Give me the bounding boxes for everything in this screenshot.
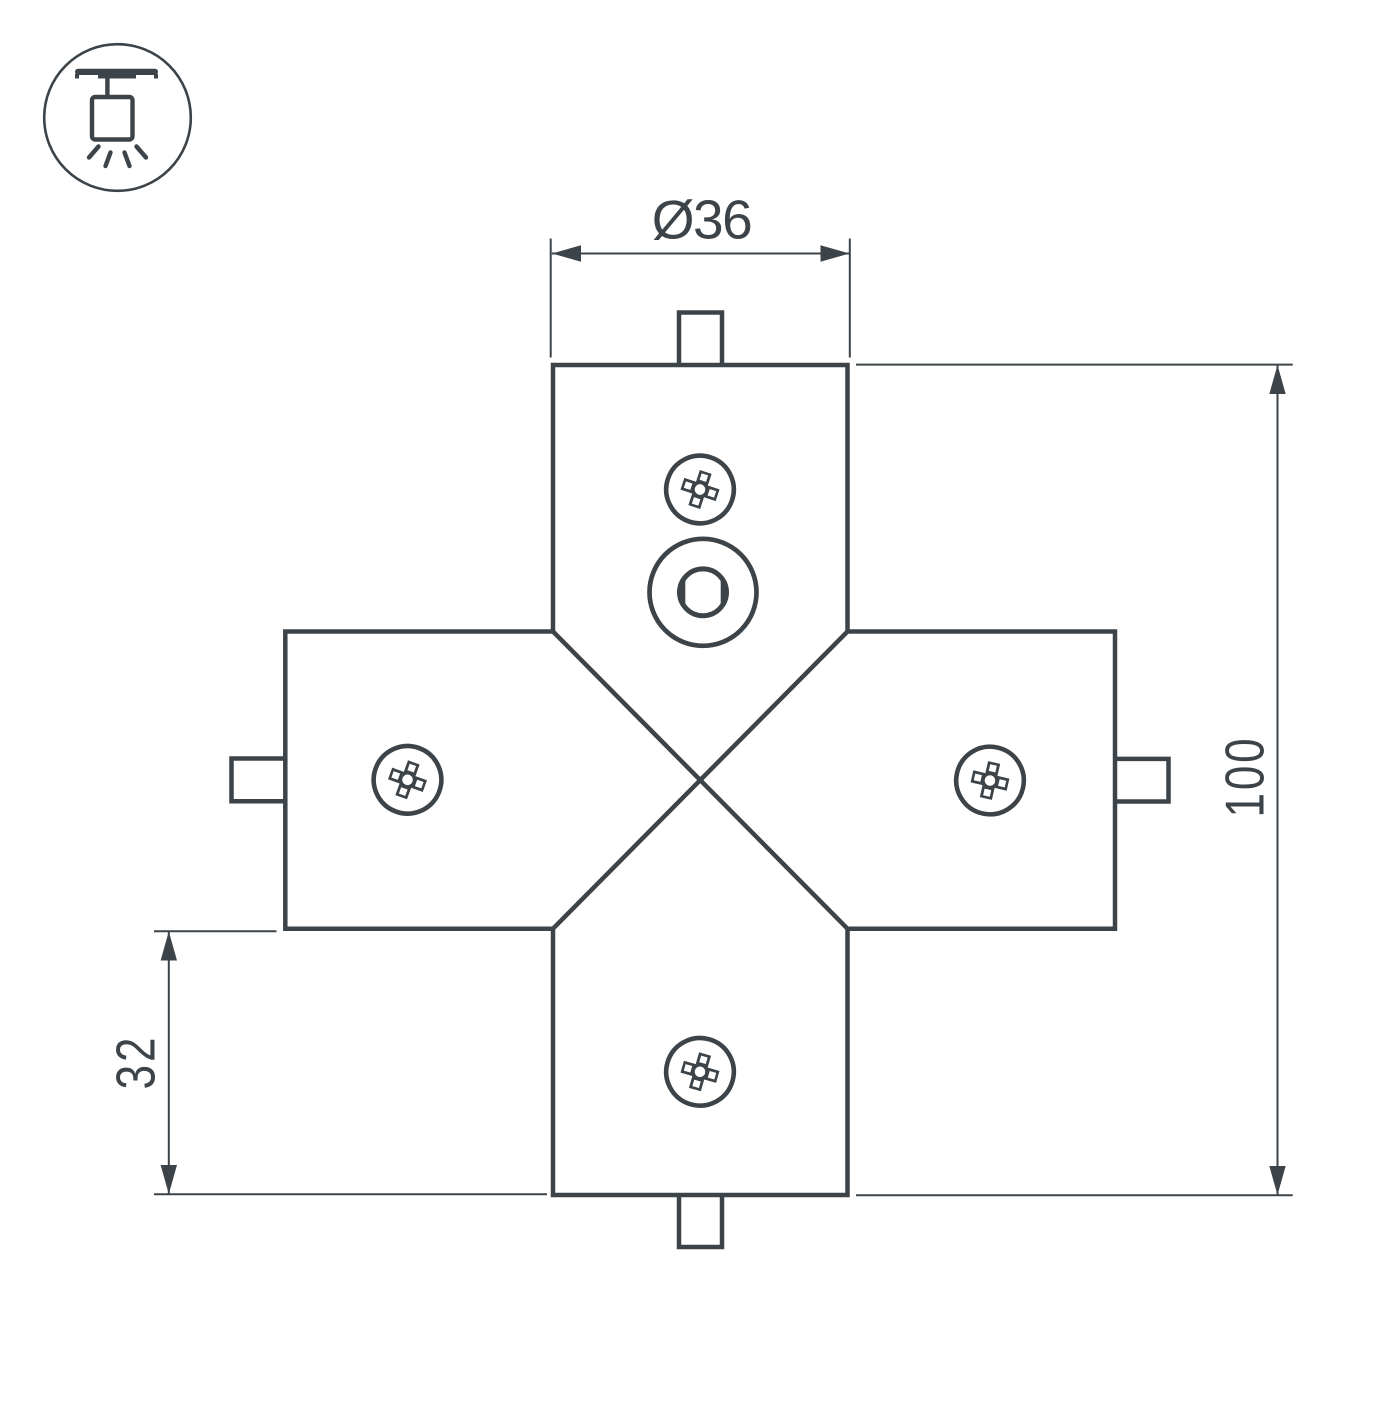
svg-text:Ø36: Ø36 [652,189,751,251]
svg-text:100: 100 [1214,735,1276,817]
svg-text:32: 32 [105,1035,167,1090]
